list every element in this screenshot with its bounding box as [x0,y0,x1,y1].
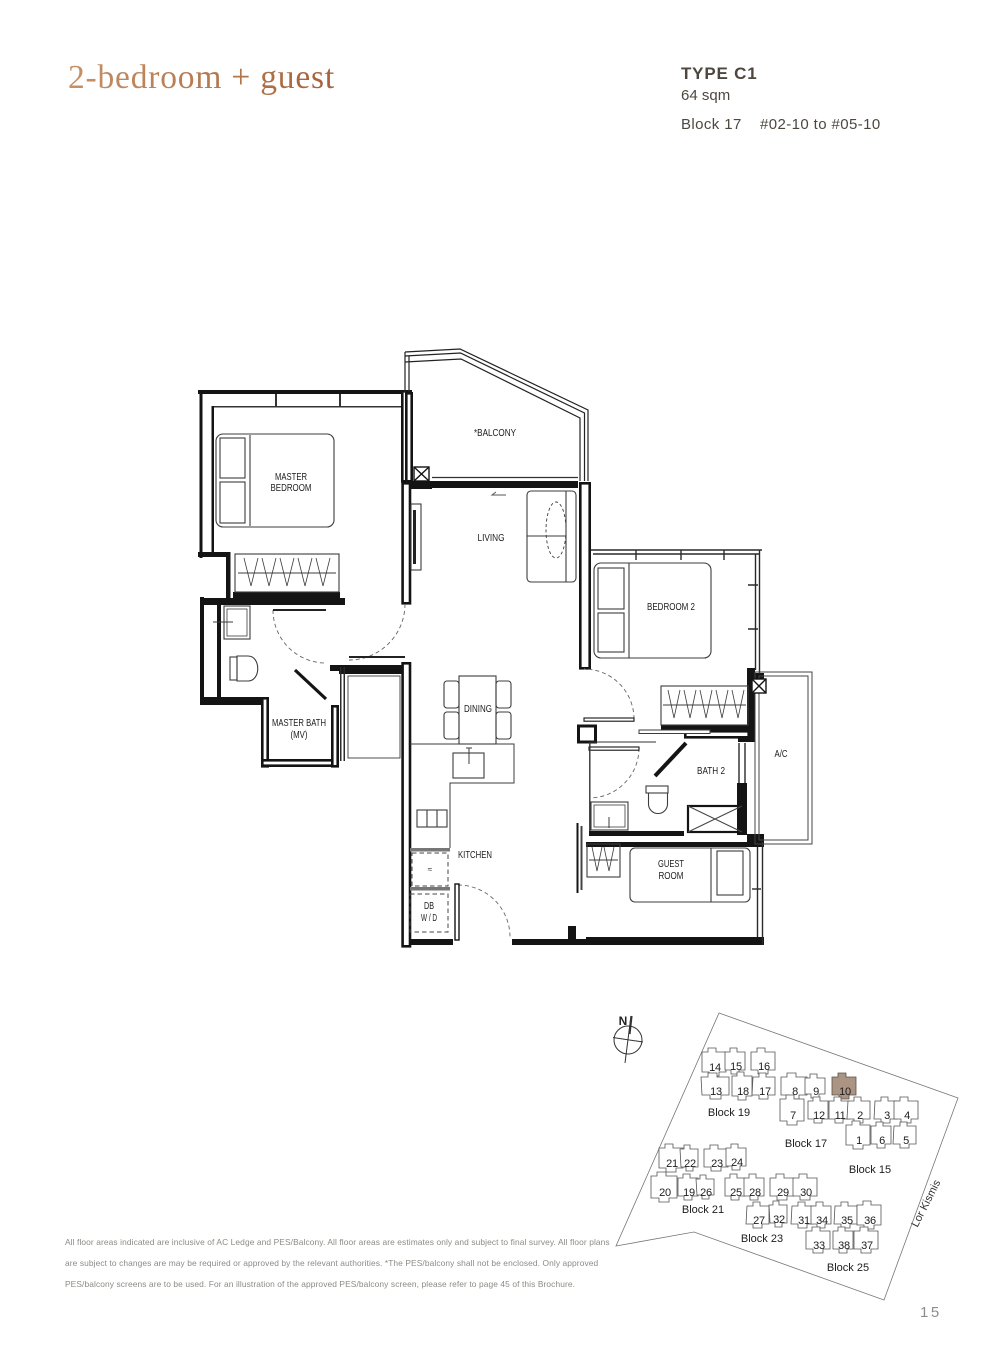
svg-text:Lor Kismis: Lor Kismis [909,1178,943,1230]
svg-text:25: 25 [730,1187,742,1199]
svg-text:20: 20 [659,1187,671,1199]
svg-text:3: 3 [884,1110,890,1122]
svg-text:≈: ≈ [428,865,433,874]
svg-text:MASTER: MASTER [275,472,307,483]
svg-text:BEDROOM: BEDROOM [271,483,312,494]
svg-text:Block 19: Block 19 [708,1107,750,1119]
svg-text:24: 24 [731,1157,743,1169]
svg-text:Block 25: Block 25 [827,1262,869,1274]
svg-text:(MV): (MV) [291,730,308,741]
svg-text:10: 10 [839,1086,851,1098]
svg-text:A/C: A/C [775,749,788,760]
svg-text:BATH 2: BATH 2 [697,766,725,777]
svg-text:13: 13 [710,1086,722,1098]
svg-text:Block 17: Block 17 [785,1138,827,1150]
svg-text:N: N [619,1014,628,1028]
svg-text:37: 37 [861,1240,873,1252]
svg-text:*BALCONY: *BALCONY [474,428,516,439]
svg-text:11: 11 [835,1110,846,1122]
svg-text:38: 38 [838,1240,850,1252]
svg-text:21: 21 [666,1158,678,1170]
svg-text:33: 33 [813,1240,825,1252]
svg-text:23: 23 [711,1158,723,1170]
svg-text:26: 26 [700,1187,712,1199]
svg-text:8: 8 [792,1086,798,1098]
svg-text:36: 36 [864,1215,876,1227]
svg-text:27: 27 [753,1215,765,1227]
svg-text:30: 30 [800,1187,812,1199]
svg-text:35: 35 [841,1215,853,1227]
svg-text:BEDROOM 2: BEDROOM 2 [647,602,695,613]
svg-text:16: 16 [758,1061,770,1073]
svg-text:34: 34 [816,1215,828,1227]
svg-text:9: 9 [813,1086,819,1098]
svg-text:12: 12 [813,1110,825,1122]
svg-text:29: 29 [777,1187,789,1199]
svg-text:4: 4 [904,1110,910,1122]
svg-text:LIVING: LIVING [478,533,505,544]
svg-text:Block 23: Block 23 [741,1233,783,1245]
svg-text:17: 17 [759,1086,771,1098]
svg-text:19: 19 [683,1187,695,1199]
svg-text:DB: DB [424,901,434,912]
svg-text:DINING: DINING [464,704,492,715]
svg-text:6: 6 [879,1135,885,1147]
svg-text:32: 32 [773,1214,785,1226]
svg-text:31: 31 [798,1215,810,1227]
svg-text:ROOM: ROOM [659,871,684,882]
svg-text:MASTER BATH: MASTER BATH [272,718,326,729]
svg-text:KITCHEN: KITCHEN [458,850,492,861]
svg-text:Block 15: Block 15 [849,1164,891,1176]
svg-text:18: 18 [737,1086,749,1098]
svg-text:W / D: W / D [421,913,437,924]
svg-text:22: 22 [684,1158,696,1170]
svg-text:14: 14 [709,1062,721,1074]
svg-text:7: 7 [790,1110,796,1122]
svg-text:5: 5 [903,1135,909,1147]
svg-text:2: 2 [857,1110,863,1122]
svg-text:GUEST: GUEST [658,859,684,870]
svg-text:28: 28 [749,1187,761,1199]
svg-text:Block 21: Block 21 [682,1204,724,1216]
svg-text:15: 15 [730,1061,742,1073]
svg-text:1: 1 [856,1135,862,1147]
